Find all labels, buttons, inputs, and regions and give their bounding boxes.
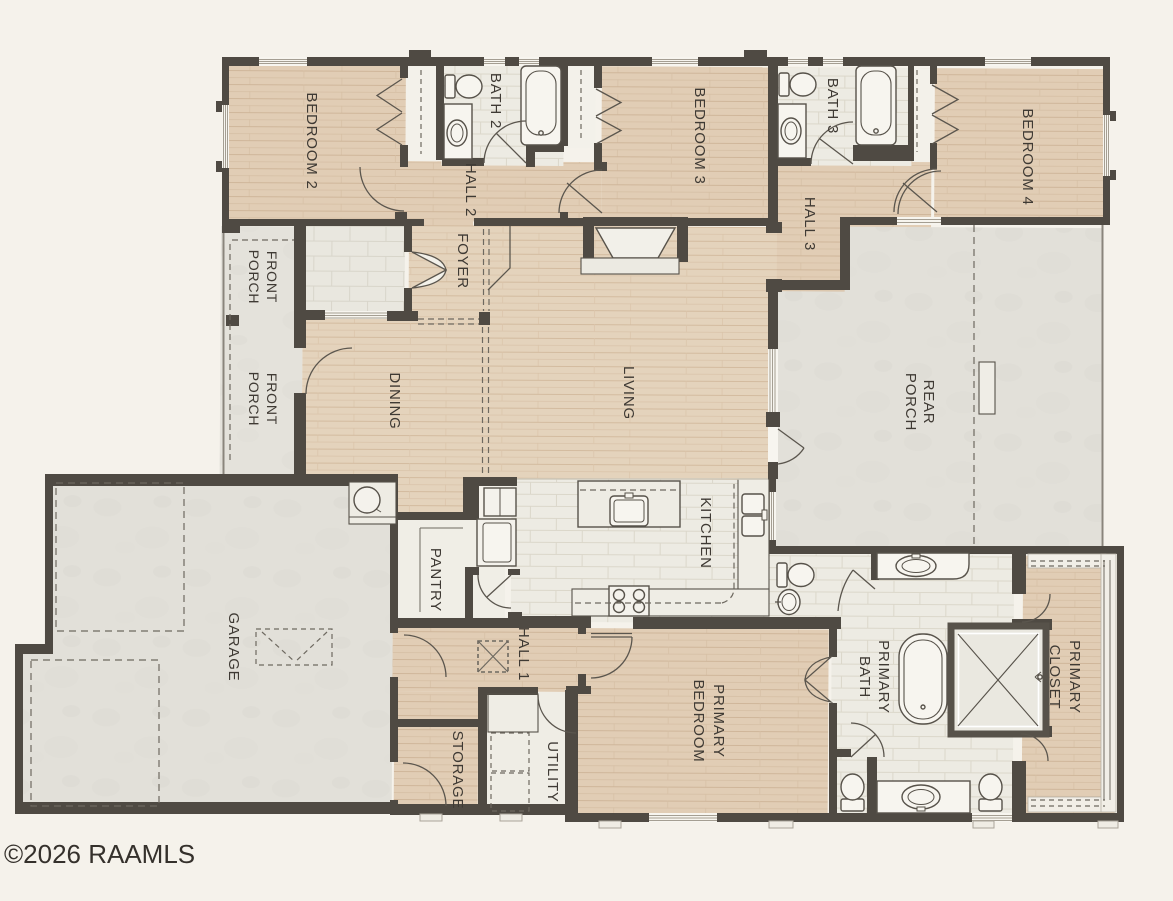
svg-text:DINING: DINING (386, 372, 403, 429)
svg-text:PRIMARY: PRIMARY (1066, 640, 1083, 714)
svg-text:GARAGE: GARAGE (225, 613, 242, 682)
svg-text:LIVING: LIVING (620, 366, 637, 420)
svg-text:HALL 2: HALL 2 (462, 163, 479, 217)
svg-text:PRIMARY: PRIMARY (710, 684, 727, 758)
svg-text:FRONT: FRONT (264, 373, 280, 425)
svg-text:BEDROOM: BEDROOM (690, 679, 707, 762)
svg-text:BATH: BATH (856, 656, 873, 698)
svg-text:BEDROOM 2: BEDROOM 2 (303, 92, 320, 189)
svg-text:CLOSET: CLOSET (1046, 645, 1063, 710)
svg-text:PORCH: PORCH (246, 250, 262, 305)
svg-text:FRONT: FRONT (264, 251, 280, 303)
svg-text:BATH 2: BATH 2 (487, 73, 504, 129)
svg-text:BEDROOM 4: BEDROOM 4 (1019, 108, 1036, 205)
svg-text:KITCHEN: KITCHEN (697, 497, 714, 568)
svg-text:HALL 1: HALL 1 (515, 627, 532, 681)
svg-text:STORAGE: STORAGE (449, 731, 466, 810)
svg-text:PRIMARY: PRIMARY (875, 640, 892, 714)
svg-text:FOYER: FOYER (454, 233, 471, 289)
svg-text:PANTRY: PANTRY (427, 548, 444, 612)
svg-text:REAR: REAR (920, 380, 937, 425)
svg-text:PORCH: PORCH (246, 372, 262, 427)
svg-text:BATH 3: BATH 3 (824, 78, 841, 134)
svg-text:©2026 RAAMLS: ©2026 RAAMLS (4, 839, 195, 869)
svg-text:PORCH: PORCH (902, 373, 919, 431)
svg-text:BEDROOM 3: BEDROOM 3 (691, 87, 708, 184)
svg-text:UTILITY: UTILITY (544, 741, 561, 802)
svg-text:HALL 3: HALL 3 (801, 197, 818, 251)
